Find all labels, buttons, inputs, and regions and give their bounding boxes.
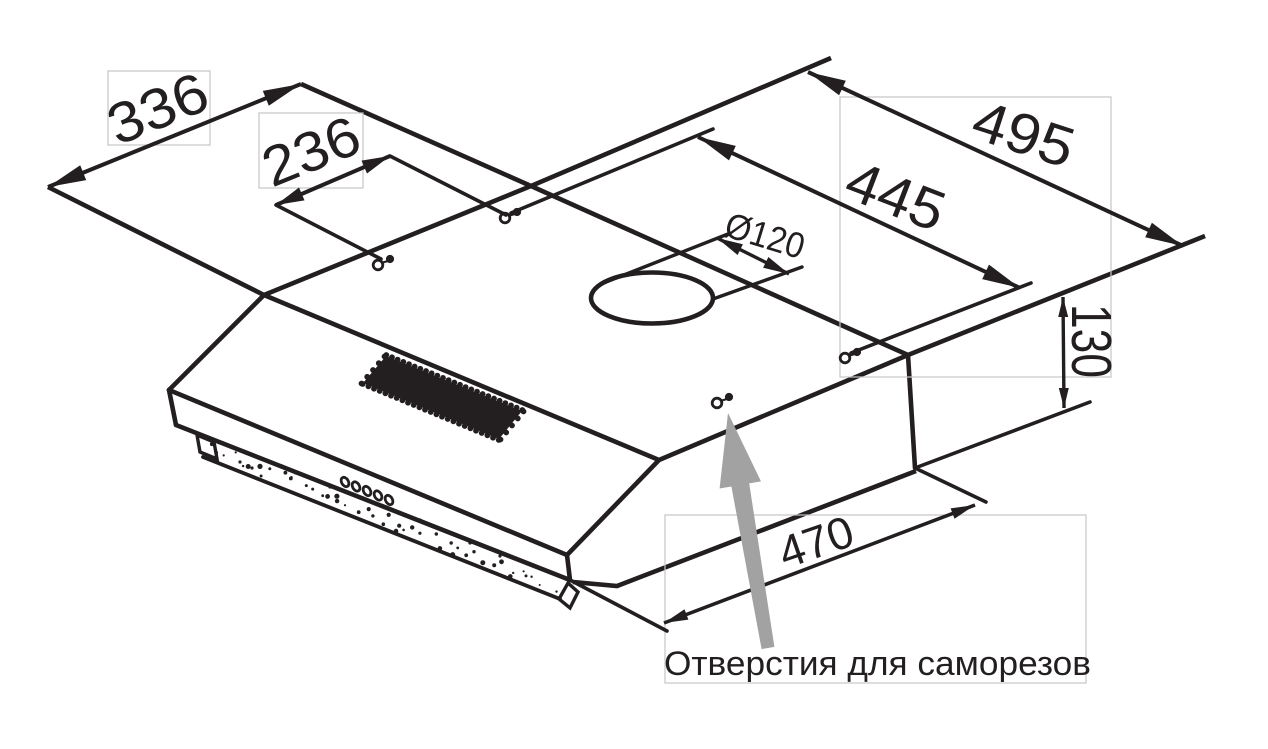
svg-text:130: 130 (1059, 304, 1123, 378)
svg-text:Отверстия для саморезов: Отверстия для саморезов (664, 645, 1091, 683)
